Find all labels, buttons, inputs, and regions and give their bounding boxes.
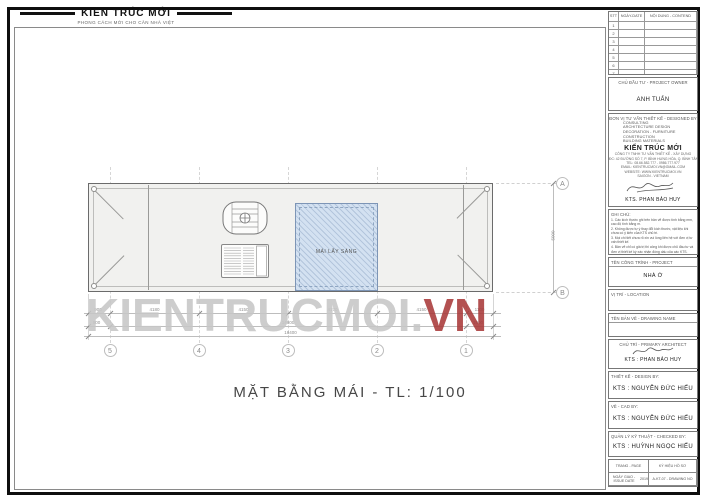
grid-bubble-1: 1 (460, 344, 473, 357)
drawing-number: A-KT-07 - DRAWING NO (649, 473, 697, 486)
rev-cell (619, 70, 645, 75)
grid-bubble-b: B (556, 286, 569, 299)
page-label: TRANG - PAGE (609, 460, 649, 473)
project-box: TÊN CÔNG TRÌNH - PROJECT NHÀ Ở (608, 257, 698, 287)
rev-cell (619, 62, 645, 70)
owner-name: ANH TUẤN (609, 97, 697, 103)
rev-cell (619, 46, 645, 54)
rev-cell (619, 54, 645, 62)
rev-cell (619, 22, 645, 30)
skylight-label: MÁI LẤY SÁNG (296, 249, 377, 255)
rev-cell (645, 54, 697, 62)
rev-row-no: 7 (609, 70, 619, 75)
rev-row-no: 5 (609, 54, 619, 62)
water-tank-icon (222, 201, 268, 240)
note-item: 2. Không được tự ý thay đổi kích thước, … (611, 227, 695, 236)
issue-value: 2019 (640, 477, 648, 481)
grid-bubble-3: 3 (282, 344, 295, 357)
roof-outline (88, 183, 493, 292)
project-name: NHÀ Ở (609, 273, 697, 279)
grid-bubble-a: A (556, 177, 569, 190)
location-box: VỊ TRÍ - LOCATION (608, 289, 698, 311)
skylight-frame-line (299, 207, 374, 287)
revision-table: STT NGÀY-DATE NỘI DUNG - CONTEND 1 2 3 4… (608, 11, 698, 75)
cad-by-name: KTS : NGUYỄN ĐỨC HIẾU (609, 416, 697, 422)
rev-cell (645, 62, 697, 70)
designer-label: ĐƠN VỊ TƯ VẤN THIẾT KẾ - DESIGNED BY (609, 114, 697, 121)
rev-col-content: NỘI DUNG - CONTEND (645, 12, 697, 22)
owner-box: CHỦ ĐẦU TƯ - PROJECT OWNER ANH TUẤN (608, 77, 698, 111)
drawing-title: MẶT BẰNG MÁI - TL: 1/100 (150, 384, 550, 401)
design-by-label: THIẾT KẾ - DESIGN BY: (609, 372, 697, 379)
grid-bubble-4: 4 (193, 344, 206, 357)
ext-line-a (496, 183, 556, 184)
roof-drain-point (91, 186, 97, 192)
watermark: KIENTRUCMOI.VN (86, 287, 510, 343)
solar-heater-icon (221, 244, 269, 283)
primary-architect-box: CHỦ TRÌ - PRIMARY ARCHITECT KTS : PHAN B… (608, 339, 698, 369)
location-label: VỊ TRÍ - LOCATION (609, 290, 697, 297)
design-by-name: KTS : NGUYỄN ĐỨC HIẾU (609, 386, 697, 392)
rev-row-no: 1 (609, 22, 619, 30)
drawing-sheet: KIẾN TRÚC MỚI PHONG CÁCH MỚI CHO CĂN NHÀ… (0, 0, 705, 499)
firm-slogan: PHONG CÁCH MỚI CHO CĂN NHÀ VIỆT (20, 20, 232, 25)
owner-label: CHỦ ĐẦU TƯ - PROJECT OWNER (609, 78, 697, 85)
grid-bubble-5: 5 (104, 344, 117, 357)
designer-signature (609, 179, 697, 197)
rev-row-no: 4 (609, 46, 619, 54)
logo-rule-right (177, 12, 232, 15)
skylight-area: MÁI LẤY SÁNG (295, 203, 378, 291)
drawing-name-box: TÊN BẢN VẼ - DRAWING NAME (608, 313, 698, 337)
roof-drain-point (484, 186, 490, 192)
watermark-red: VN (423, 289, 487, 341)
rev-cell (645, 38, 697, 46)
designer-box: ĐƠN VỊ TƯ VẤN THIẾT KẾ - DESIGNED BY CON… (608, 113, 698, 207)
file-label: KÝ HIỆU HỒ SƠ (649, 460, 697, 473)
cad-by-box: VẼ - CAD BY: KTS : NGUYỄN ĐỨC HIẾU (608, 401, 698, 429)
logo-rule-left (20, 12, 75, 15)
rev-cell (645, 70, 697, 75)
note-item: 1. Các kích thước ghi trên bản vẽ được t… (611, 218, 695, 227)
note-item: 3. Mọi chi tiết chưa rõ xin vui lòng liê… (611, 236, 695, 245)
rev-col-no: STT (609, 12, 619, 22)
rev-row-no: 2 (609, 30, 619, 38)
rev-cell (619, 38, 645, 46)
rev-col-date: NGÀY-DATE (619, 12, 645, 22)
note-item: 4. Bản vẽ chỉ có giá trị thi công khi đư… (611, 245, 695, 254)
rev-row-no: 3 (609, 38, 619, 46)
rev-cell (645, 46, 697, 54)
roof-edge-line-left (148, 185, 149, 290)
checked-by-name: KTS : HUỲNH NGỌC HIẾU (609, 444, 697, 450)
rev-cell (645, 30, 697, 38)
firm-name: KIẾN TRÚC MỚI (81, 8, 171, 19)
service-item: BUILDING MATERIALS (623, 139, 697, 144)
design-by-box: THIẾT KẾ - DESIGN BY: KTS : NGUYỄN ĐỨC H… (608, 371, 698, 399)
roof-edge-line-right (463, 185, 464, 290)
checked-by-label: QUẢN LÝ KỸ THUẬT - CHECKED BY: (609, 432, 697, 439)
designer-architect: KTS. PHAN BẢO HUY (609, 197, 697, 203)
grid-bubble-2: 2 (371, 344, 384, 357)
company-line: CÔNG TY TNHH TƯ VẤN THIẾT KẾ - XÂY DỰNG (609, 152, 697, 156)
issue-label: NGÀY GIAO - ISSUE DATE (609, 475, 639, 483)
title-block: STT NGÀY-DATE NỘI DUNG - CONTEND 1 2 3 4… (607, 9, 700, 490)
notes-box: GHI CHÚ: 1. Các kích thước ghi trên bản … (608, 209, 698, 255)
rev-cell (619, 30, 645, 38)
watermark-gray: KIENTRUCMOI. (86, 289, 423, 341)
checked-by-box: QUẢN LÝ KỸ THUẬT - CHECKED BY: KTS : HUỲ… (608, 431, 698, 457)
footer-grid: TRANG - PAGE KÝ HIỆU HỒ SƠ NGÀY GIAO - I… (608, 459, 698, 487)
project-label: TÊN CÔNG TRÌNH - PROJECT (609, 258, 697, 267)
drawing-name-label: TÊN BẢN VẼ - DRAWING NAME (609, 314, 697, 323)
rev-row-no: 6 (609, 62, 619, 70)
roof-parapet-line (93, 188, 488, 287)
rev-cell (645, 22, 697, 30)
issue-date: NGÀY GIAO - ISSUE DATE 2019 (609, 473, 649, 486)
dim-vertical-value: 5000 (551, 216, 556, 256)
firm-logo: KIẾN TRÚC MỚI PHONG CÁCH MỚI CHO CĂN NHÀ… (20, 8, 232, 25)
primary-name: KTS : PHAN BẢO HUY (609, 357, 697, 363)
cad-by-label: VẼ - CAD BY: (609, 402, 697, 409)
